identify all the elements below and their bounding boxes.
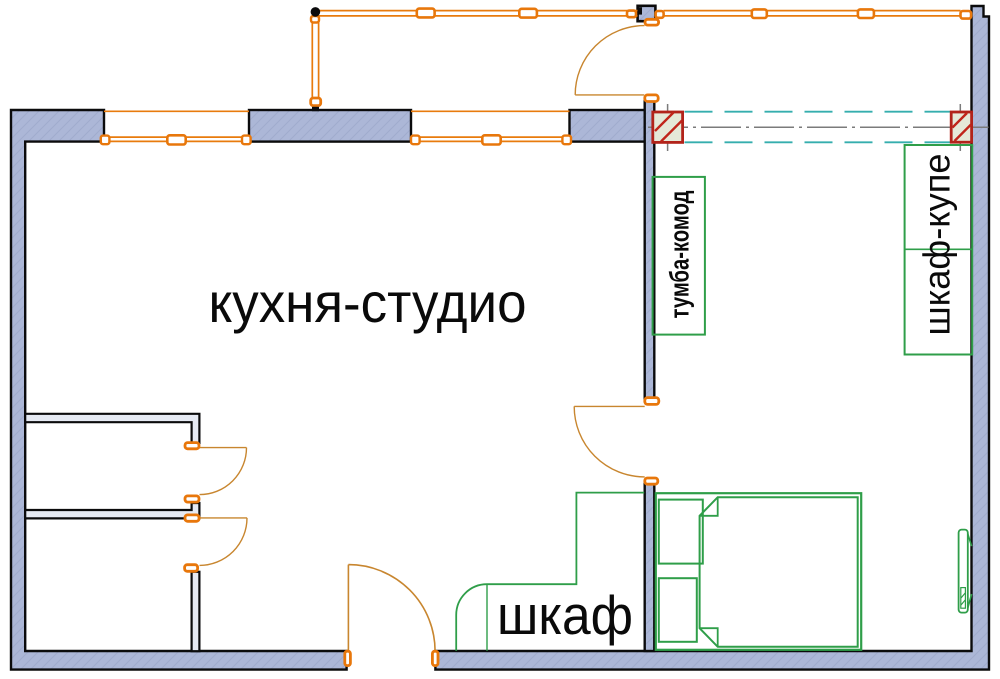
svg-text:кухня-студио: кухня-студио <box>209 271 527 334</box>
svg-text:шкаф-купе: шкаф-купе <box>917 154 958 336</box>
svg-text:шкаф: шкаф <box>497 584 633 646</box>
svg-text:тумба-комод: тумба-комод <box>665 191 695 319</box>
